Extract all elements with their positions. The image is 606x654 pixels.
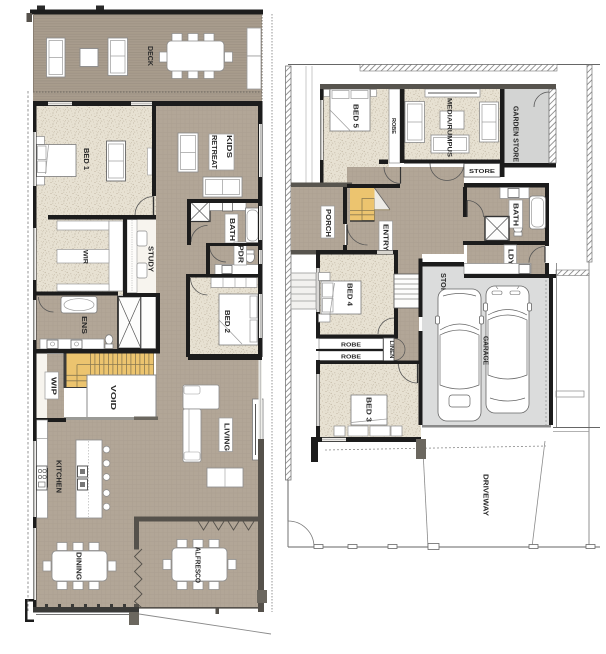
svg-text:STORE: STORE: [469, 169, 495, 175]
svg-text:STUDY: STUDY: [147, 246, 156, 272]
svg-text:WIP: WIP: [50, 377, 57, 395]
svg-text:DINING: DINING: [75, 552, 82, 581]
svg-text:BED 4: BED 4: [346, 283, 355, 307]
svg-text:BED 2: BED 2: [223, 310, 232, 333]
svg-text:ROBE: ROBE: [390, 118, 396, 134]
svg-text:GARAGE: GARAGE: [482, 336, 489, 365]
svg-text:LDY: LDY: [507, 249, 514, 265]
svg-text:GARDEN STORE: GARDEN STORE: [512, 106, 519, 162]
svg-text:BATH: BATH: [228, 218, 235, 241]
svg-text:ENS: ENS: [80, 316, 87, 334]
svg-text:PORCH: PORCH: [324, 209, 331, 237]
svg-text:BED 3: BED 3: [365, 397, 374, 422]
svg-text:ROBE: ROBE: [341, 355, 361, 361]
svg-text:MEDIA/RUMPUS: MEDIA/RUMPUS: [446, 98, 453, 158]
svg-text:ENTRY: ENTRY: [382, 224, 389, 251]
svg-text:ALFRESCO: ALFRESCO: [194, 547, 201, 584]
svg-text:KIDS: KIDS: [225, 135, 232, 158]
svg-text:RETREAT: RETREAT: [210, 135, 217, 170]
svg-text:BED 5: BED 5: [352, 104, 361, 128]
svg-text:BED 1: BED 1: [82, 148, 91, 170]
svg-text:VOID: VOID: [109, 385, 118, 411]
svg-text:WIR: WIR: [82, 250, 89, 264]
svg-text:LINEN: LINEN: [388, 341, 394, 359]
svg-text:KITCHEN: KITCHEN: [55, 460, 64, 493]
svg-text:PDR: PDR: [237, 245, 244, 263]
svg-text:BATH: BATH: [512, 203, 519, 226]
svg-text:DECK: DECK: [146, 46, 155, 67]
svg-text:DRIVEWAY: DRIVEWAY: [482, 474, 489, 516]
svg-text:LIVING: LIVING: [223, 423, 230, 452]
svg-text:ROBE: ROBE: [341, 343, 361, 349]
